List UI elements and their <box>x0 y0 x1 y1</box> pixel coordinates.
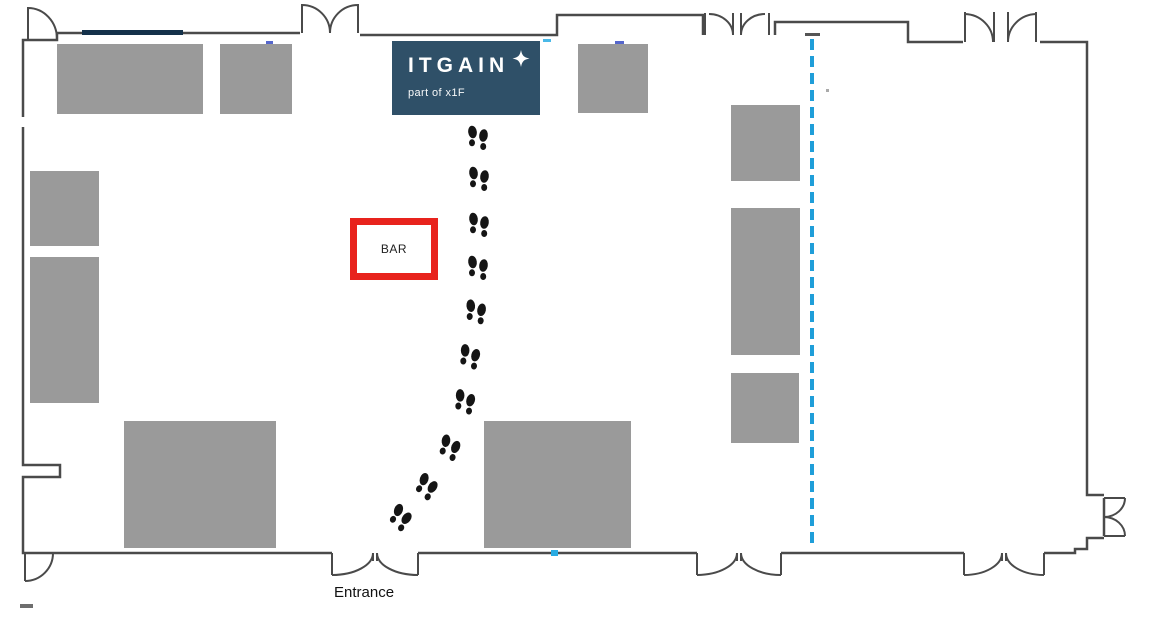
blue-tick-top-booth <box>615 41 624 44</box>
booth-block-4 <box>30 171 99 246</box>
footstep-4 <box>467 255 488 280</box>
itgain-tagline: part of x1F <box>408 87 526 99</box>
footstep-10 <box>386 502 416 534</box>
blue-tick-top-left <box>266 41 273 44</box>
blue-tick-bottom-wall <box>551 550 558 556</box>
booth-block-3 <box>578 44 648 113</box>
booth-block-7 <box>484 421 631 548</box>
floor-plan: ITGAIN part of x1F BAR Entrance <box>0 0 1157 640</box>
booth-block-2 <box>220 44 292 114</box>
blue-tick-top-mid <box>543 39 551 42</box>
booth-block-1 <box>57 44 203 114</box>
dash-line-top-cap <box>805 33 820 36</box>
floor-plan-drawing <box>0 0 1157 640</box>
bar-label: BAR <box>381 242 407 256</box>
footstep-5 <box>465 299 488 325</box>
bar-area: BAR <box>350 218 438 280</box>
booth-block-9 <box>731 208 800 355</box>
footstep-9 <box>412 471 442 502</box>
sparkle-icon <box>512 50 530 67</box>
booth-block-5 <box>30 257 99 403</box>
small-mark-bottom-left <box>20 604 33 608</box>
small-dot <box>826 89 829 92</box>
footstep-2 <box>468 166 489 191</box>
booth-blocks <box>30 44 800 548</box>
footstep-3 <box>468 212 489 237</box>
footstep-8 <box>436 433 463 462</box>
footstep-7 <box>453 388 477 415</box>
booth-block-8 <box>731 105 800 181</box>
footstep-1 <box>467 125 488 150</box>
booth-block-6 <box>124 421 276 548</box>
footprints-trail <box>386 125 490 533</box>
booth-block-10 <box>731 373 799 443</box>
wall-accent-bar <box>82 30 183 35</box>
entrance-label: Entrance <box>334 584 394 601</box>
footstep-6 <box>458 343 482 370</box>
itgain-logo-text: ITGAIN <box>408 54 526 77</box>
itgain-booth: ITGAIN part of x1F <box>392 41 540 115</box>
